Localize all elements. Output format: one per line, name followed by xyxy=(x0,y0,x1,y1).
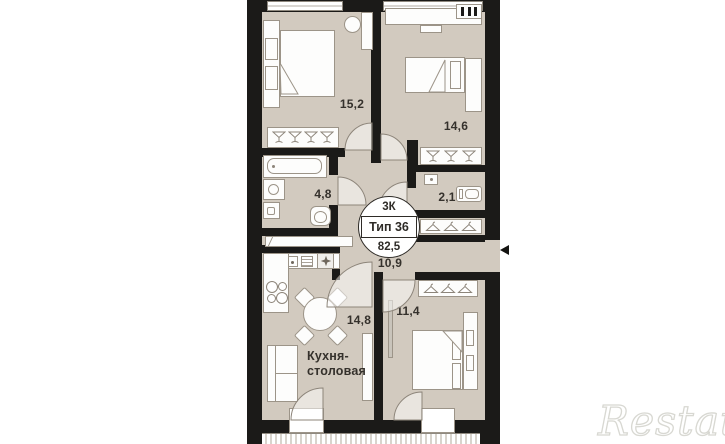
floorplan-image: 15,2 14,6 4,8 2,1 10,9 14,8 Кухня- столо… xyxy=(0,0,725,444)
badge-type: Тип 36 xyxy=(361,216,417,237)
door-arc-kitchen xyxy=(327,262,372,307)
door-arc-bedroom1 xyxy=(345,123,372,150)
badge-rooms-count: 3К xyxy=(359,197,419,216)
blanket-fold-bedroom1 xyxy=(280,63,298,94)
watermark-logo: Restate xyxy=(598,397,725,444)
door-arc-bedroom2 xyxy=(381,134,407,160)
badge-total-area: 82,5 xyxy=(359,238,419,257)
apartment-type-badge: 3К Тип 36 82,5 xyxy=(358,196,420,258)
door-arc-bedroom3 xyxy=(383,280,415,312)
blanket-fold-bedroom2 xyxy=(429,60,445,92)
entrance-arrow-icon xyxy=(500,245,509,255)
area-label-hallway: 10,9 xyxy=(373,257,407,270)
door-arc-balcony-bedroom3 xyxy=(394,392,422,420)
door-arc-balcony-kitchen xyxy=(291,388,323,420)
apartment-plan: 15,2 14,6 4,8 2,1 10,9 14,8 Кухня- столо… xyxy=(247,0,500,444)
blanket-fold-bedroom3 xyxy=(443,331,462,352)
